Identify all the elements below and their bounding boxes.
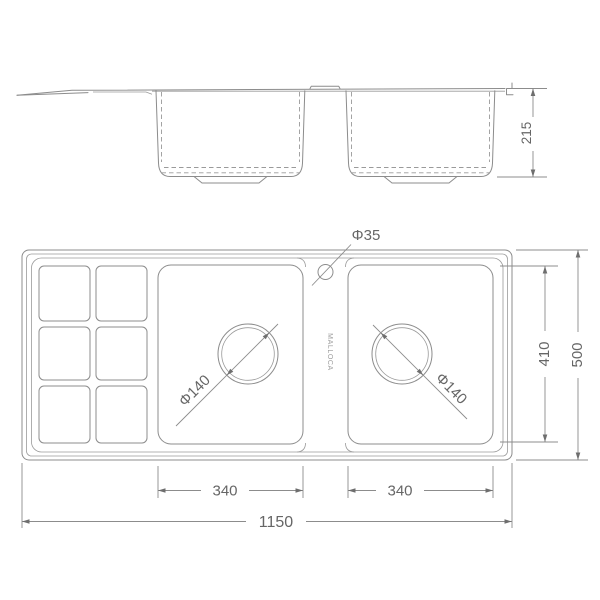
drain-right-label: Φ140 bbox=[432, 370, 470, 408]
drainboard-square-6 bbox=[96, 386, 147, 443]
dim-1150-label: 1150 bbox=[259, 514, 294, 531]
plan-view: Φ35 MALLOCA Φ140 Φ140 bbox=[22, 227, 512, 460]
center-divider-tab-profile bbox=[310, 86, 340, 88]
bowl-left-profile bbox=[156, 91, 305, 177]
dim-inner-width-410: 410 bbox=[500, 266, 558, 442]
rim-right-end-hook bbox=[507, 89, 514, 95]
dim-215-arrow-up bbox=[531, 89, 536, 97]
dim-1150-arrow-left bbox=[22, 519, 30, 523]
drainboard-square-4 bbox=[96, 327, 147, 380]
dim-340R-arrow-right bbox=[486, 488, 494, 492]
dim-340R-label: 340 bbox=[387, 483, 412, 500]
dim-500-arrow-down bbox=[576, 453, 581, 461]
dim-215-label: 215 bbox=[519, 122, 534, 145]
dim-215-arrow-down bbox=[531, 170, 536, 178]
bowl-left-plan bbox=[158, 265, 303, 444]
dim-340L-arrow-right bbox=[296, 488, 304, 492]
dim-1150-arrow-right bbox=[505, 519, 513, 523]
drain-left: Φ140 bbox=[176, 324, 278, 426]
side-elevation-view: 215 bbox=[17, 83, 547, 183]
dim-410-arrow-down bbox=[543, 435, 548, 443]
drainboard-square-1 bbox=[39, 266, 90, 321]
drainboard-square-3 bbox=[39, 327, 90, 380]
drainboard-square-5 bbox=[39, 386, 90, 443]
sink-drawing-svg: 215 Φ35 MALLOCA bbox=[0, 0, 600, 600]
dim-340L-label: 340 bbox=[212, 483, 237, 500]
dim-500-label: 500 bbox=[569, 342, 586, 367]
faucet-leader-line bbox=[312, 245, 351, 286]
divider-fillet-bottom-left bbox=[297, 443, 306, 452]
divider-fillet-bottom-right bbox=[346, 443, 355, 452]
drainboard-square-2 bbox=[96, 266, 147, 321]
technical-drawing-canvas: 215 Φ35 MALLOCA bbox=[0, 0, 600, 600]
dim-410-label: 410 bbox=[536, 341, 553, 366]
bowl-right-profile bbox=[346, 91, 495, 177]
brand-text: MALLOCA bbox=[326, 333, 333, 371]
dim-depth-215: 215 bbox=[497, 89, 547, 178]
divider-fillet-top-right bbox=[346, 258, 355, 267]
bowl-left-drain-boss bbox=[194, 177, 267, 184]
drain-right: Φ140 bbox=[372, 324, 470, 419]
dim-500-arrow-up bbox=[576, 250, 581, 258]
bowl-right-drain-boss bbox=[384, 177, 457, 184]
dim-410-arrow-up bbox=[543, 266, 548, 274]
drain-left-label: Φ140 bbox=[176, 372, 214, 410]
faucet-hole-label: Φ35 bbox=[352, 227, 381, 244]
drainboard-back-edge bbox=[93, 92, 152, 94]
drainboard-grid bbox=[39, 266, 147, 443]
dim-340R-arrow-left bbox=[348, 488, 356, 492]
dim-overall-length-1150: 1150 bbox=[22, 463, 512, 531]
bowl-right-plan bbox=[348, 265, 493, 444]
dim-bowl-left-340: 340 bbox=[158, 466, 303, 500]
divider-fillet-top-left bbox=[297, 258, 306, 267]
sink-rim-edge bbox=[27, 254, 508, 456]
dim-bowl-right-340: 340 bbox=[348, 466, 493, 500]
rim-top-edge bbox=[17, 89, 505, 96]
dim-340L-arrow-left bbox=[158, 488, 166, 492]
